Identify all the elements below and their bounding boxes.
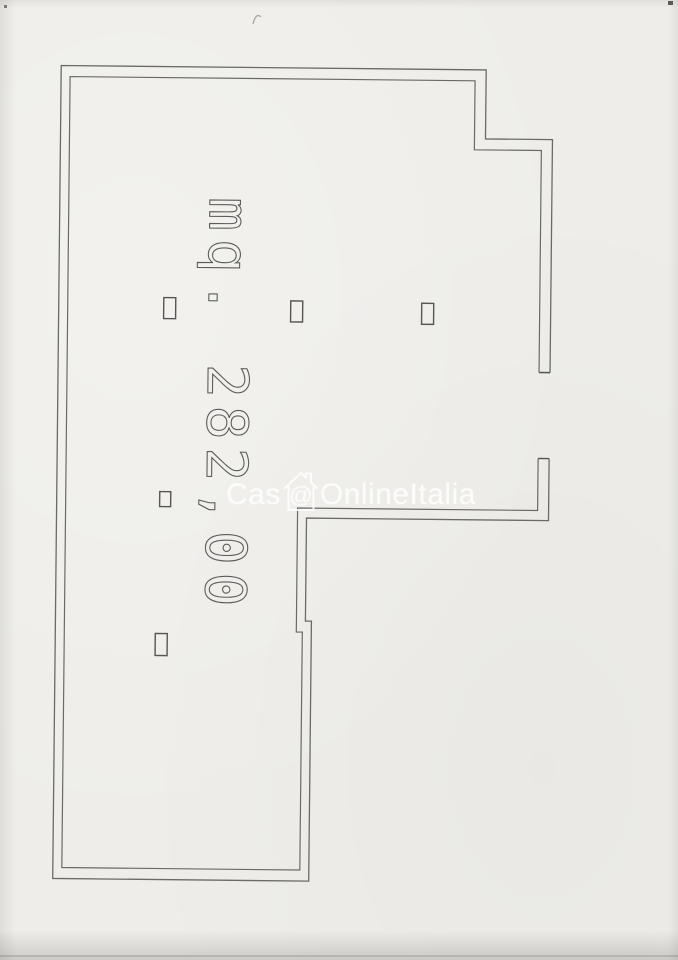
door-marker [164,298,176,319]
scan-artifact-squiggle [253,16,261,24]
scan-speck [668,1,673,5]
scan-speck [4,5,7,8]
watermark-prefix: Cas [226,478,281,512]
door-marker [155,633,167,655]
watermark-suffix: OnlineItalia [320,478,476,512]
door-marker [291,301,303,322]
watermark: Cas @ OnlineItalia [226,468,476,522]
door-marker [422,303,434,324]
door-marker [160,492,171,507]
area-label: mq. 282,00 [191,197,260,615]
at-symbol: @ [289,482,313,508]
scanned-floorplan-page: { "plan": { "area_label": "mq. 282,00", … [0,0,678,960]
house-at-icon: @ [283,468,319,516]
